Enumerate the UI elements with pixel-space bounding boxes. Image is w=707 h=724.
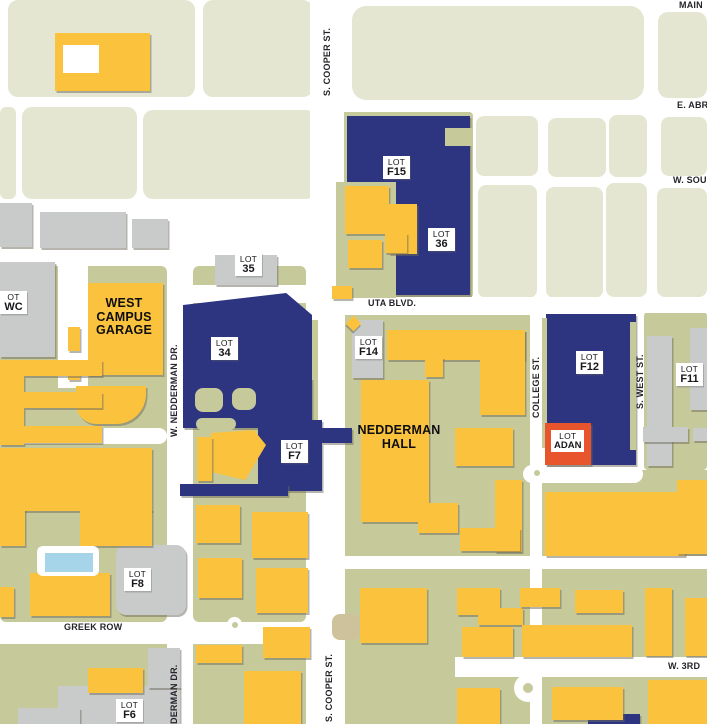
lot-label-code: 35 xyxy=(238,264,259,275)
uta-blvd-label: UTA BLVD. xyxy=(368,298,416,308)
nedderman-hall-building xyxy=(361,380,429,522)
campus-building xyxy=(80,509,152,546)
campus-building xyxy=(360,588,427,643)
lot-adan-label[interactable]: LOTADAN xyxy=(551,430,584,452)
campus-building xyxy=(0,448,152,511)
lot-label-code: F12 xyxy=(579,362,600,373)
city-block xyxy=(203,0,313,97)
lot-label-code: WC xyxy=(3,302,24,313)
campus-building xyxy=(0,360,24,445)
campus-parking-map: LOTF15LOT36LOT35LOT34LOTF14LOTF7LOTF12LO… xyxy=(0,0,707,724)
gray-building xyxy=(132,219,168,248)
lot-label-code: ADAN xyxy=(554,441,581,451)
ground-cutout xyxy=(232,388,256,410)
college-st-label: COLLEGE ST. xyxy=(531,350,541,418)
campus-building xyxy=(648,680,707,724)
campus-building xyxy=(196,645,242,663)
lot-label-code: F14 xyxy=(358,347,379,358)
w-south-st-label: W. SOU xyxy=(673,175,707,185)
city-block xyxy=(546,187,603,298)
main-st-label: MAIN xyxy=(679,0,703,10)
swimming-pool xyxy=(44,552,94,573)
gray-building xyxy=(643,427,688,442)
campus-building xyxy=(478,608,523,625)
ground-cutout xyxy=(196,418,236,430)
city-block xyxy=(352,6,644,100)
campus-building xyxy=(480,330,525,415)
campus-building xyxy=(348,240,382,268)
w-nedderman-dr-label: W. NEDDERMAN DR. xyxy=(169,335,179,437)
campus-building xyxy=(545,492,685,556)
campus-building xyxy=(30,573,110,616)
lot-f6-label[interactable]: LOTF6 xyxy=(116,699,143,722)
campus-building xyxy=(385,233,407,253)
ground-cutout xyxy=(445,128,473,146)
place-label-line: GARAGE xyxy=(86,324,162,338)
lot-f11-area xyxy=(647,336,672,466)
lot-f7-label[interactable]: LOTF7 xyxy=(281,440,308,463)
s-cooper-st-north-label: S. COOPER ST. xyxy=(322,16,332,96)
campus-building xyxy=(252,512,308,558)
city-block xyxy=(609,115,647,177)
gray-building xyxy=(0,203,32,247)
lot-label-code: F8 xyxy=(127,579,148,590)
city-block xyxy=(548,118,606,177)
campus-building xyxy=(522,625,632,657)
campus-building xyxy=(345,186,389,234)
place-label-line: WEST xyxy=(86,297,162,311)
campus-building xyxy=(256,568,308,613)
city-block xyxy=(0,107,16,199)
campus-building xyxy=(68,327,80,351)
city-block xyxy=(143,110,316,199)
campus-building xyxy=(575,590,623,613)
campus-building xyxy=(197,437,212,481)
lot-34-label[interactable]: LOT34 xyxy=(211,337,238,360)
lot-f14-label[interactable]: LOTF14 xyxy=(355,336,382,359)
campus-building xyxy=(418,503,458,533)
roundabout-center xyxy=(232,622,238,628)
campus-building xyxy=(677,480,707,554)
gray-building xyxy=(18,708,80,724)
nedderman-dr-south-label: DERMAN DR. xyxy=(169,656,179,724)
campus-building xyxy=(0,509,25,546)
campus-building xyxy=(88,668,143,693)
city-block xyxy=(657,188,707,297)
s-cooper-st-south-label: S. COOPER ST. xyxy=(324,642,334,722)
w-3rd-st-label: W. 3RD xyxy=(668,661,700,671)
lot-35-label[interactable]: LOT35 xyxy=(235,253,262,276)
campus-building xyxy=(24,392,102,408)
campus-building xyxy=(457,688,500,724)
gray-building xyxy=(693,428,707,441)
city-block xyxy=(658,12,707,98)
gray-building xyxy=(40,212,126,248)
campus-building xyxy=(198,558,242,598)
campus-building xyxy=(425,357,443,377)
lot-label-code: F6 xyxy=(119,710,140,721)
city-block xyxy=(606,183,647,297)
lot-36-label[interactable]: LOT36 xyxy=(428,228,455,251)
lot-label-code: 34 xyxy=(214,348,235,359)
campus-building xyxy=(0,587,14,617)
campus-building xyxy=(196,505,240,543)
lot-wc-label[interactable]: OTWC xyxy=(0,291,27,314)
roundabout-center xyxy=(534,470,540,476)
campus-building xyxy=(263,627,310,658)
campus-building xyxy=(332,286,352,299)
e-abram-st-label: E. ABR xyxy=(677,100,707,110)
campus-building xyxy=(462,627,513,657)
street xyxy=(345,556,707,569)
campus-building xyxy=(520,588,560,607)
campus-building xyxy=(685,598,707,656)
lot-label-code: 36 xyxy=(431,239,452,250)
campus-building xyxy=(24,426,102,443)
lot-label-code: F7 xyxy=(284,451,305,462)
lot-f7-area[interactable] xyxy=(322,428,352,443)
city-block xyxy=(478,185,537,298)
campus-building xyxy=(24,360,102,376)
greek-row-label: GREEK ROW xyxy=(64,622,122,632)
campus-building xyxy=(460,528,520,551)
city-block xyxy=(476,116,538,176)
roundabout-center xyxy=(523,683,533,693)
place-label-line: HALL xyxy=(349,438,449,452)
lot-label-code: F11 xyxy=(679,374,700,385)
place-label-line: CAMPUS xyxy=(86,311,162,325)
ground-cutout xyxy=(195,388,223,412)
campus-building xyxy=(645,588,672,656)
west-campus-garage-label: WESTCAMPUSGARAGE xyxy=(86,297,162,338)
lot-f8-label[interactable]: LOTF8 xyxy=(124,568,151,591)
campus-building xyxy=(455,428,513,466)
s-west-st-label: S. WEST ST. xyxy=(635,347,645,409)
place-label-line: NEDDERMAN xyxy=(349,424,449,438)
campus-building xyxy=(552,687,623,720)
city-block xyxy=(22,107,137,199)
lot-label-code: F15 xyxy=(386,167,407,178)
lot-f11-label[interactable]: LOTF11 xyxy=(676,363,703,386)
ground-patch xyxy=(332,614,360,640)
nedderman-hall-label: NEDDERMANHALL xyxy=(349,424,449,451)
lot-f12-label[interactable]: LOTF12 xyxy=(576,351,603,374)
campus-building xyxy=(244,671,301,724)
lot-f15-label[interactable]: LOTF15 xyxy=(383,156,410,179)
courtyard xyxy=(63,45,99,73)
parking-lot[interactable] xyxy=(180,484,288,496)
city-block xyxy=(661,117,707,176)
